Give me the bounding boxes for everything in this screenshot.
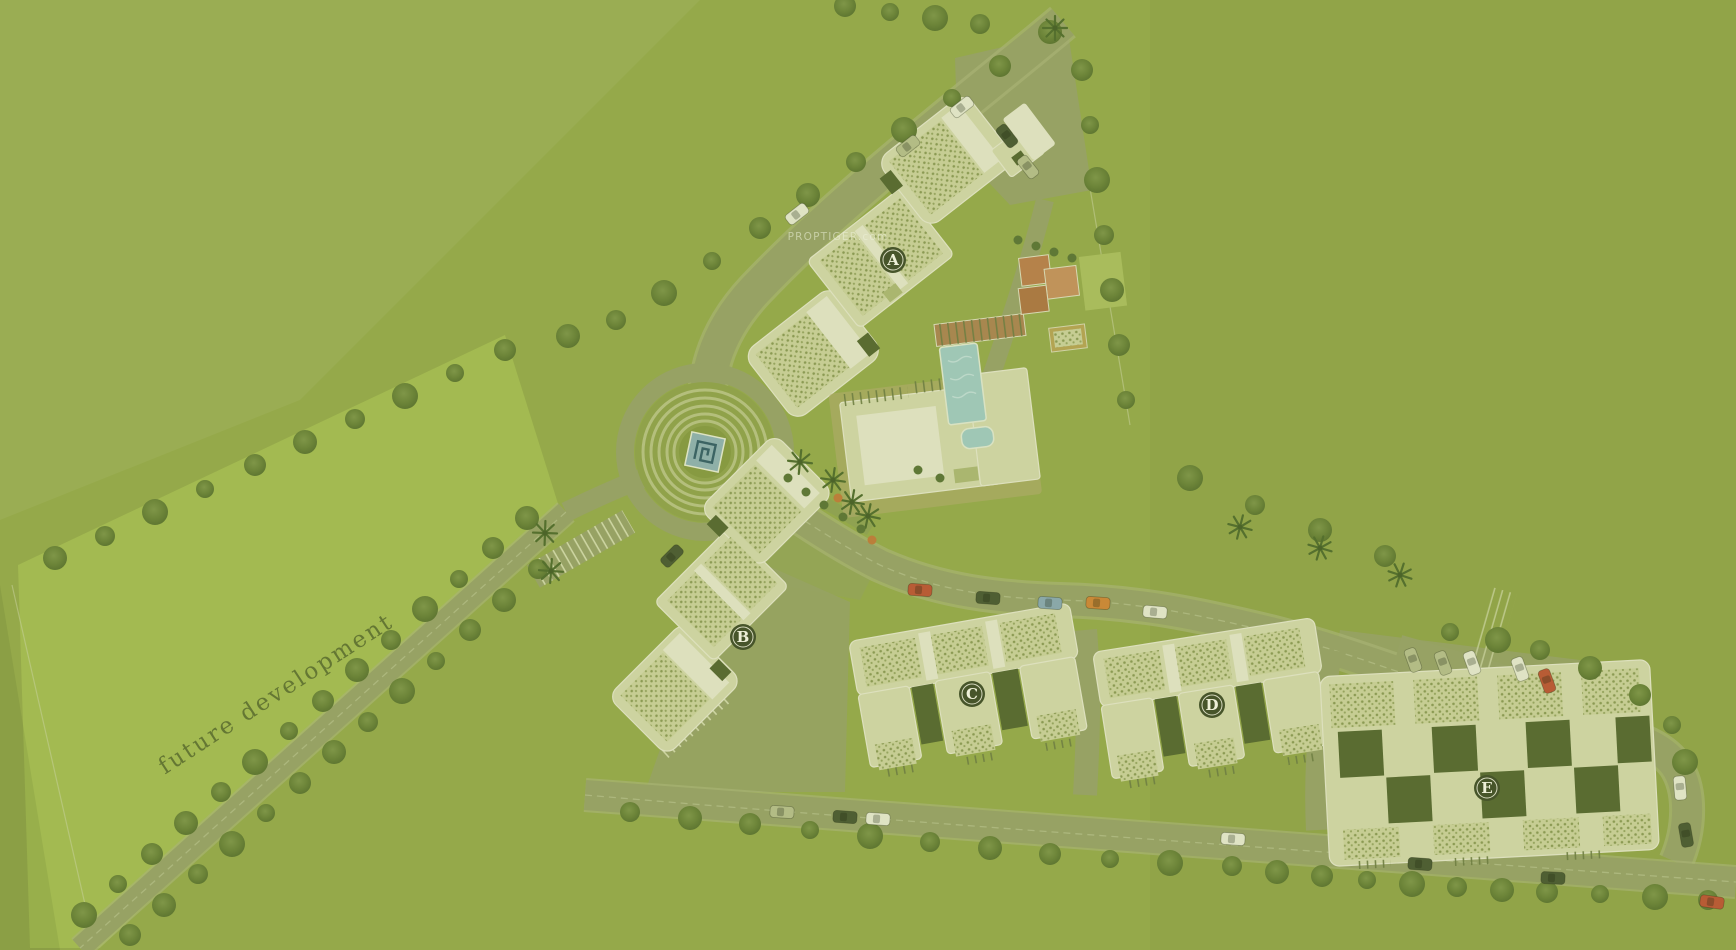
car <box>833 810 858 824</box>
tree-icon <box>450 570 468 588</box>
tree-icon <box>152 893 176 917</box>
watermark: PROPTIGER.com <box>788 231 889 243</box>
building-marker-d[interactable]: D <box>1199 692 1225 718</box>
tree-icon <box>1358 871 1376 889</box>
tree-icon <box>280 722 298 740</box>
tree-icon <box>1071 59 1093 81</box>
tree-icon <box>446 364 464 382</box>
building-e[interactable] <box>1320 660 1660 873</box>
tree-icon <box>978 836 1002 860</box>
tree-icon <box>43 546 67 570</box>
shrub-icon <box>784 474 793 483</box>
tree-icon <box>71 902 97 928</box>
shrub-icon <box>1032 242 1041 251</box>
tree-icon <box>881 3 899 21</box>
tree-icon <box>1591 885 1609 903</box>
tree-icon <box>1245 495 1265 515</box>
tree-icon <box>141 843 163 865</box>
shrub-icon <box>914 466 923 475</box>
tree-icon <box>119 924 141 946</box>
tree-icon <box>1039 843 1061 865</box>
tree-icon <box>922 5 948 31</box>
tree-icon <box>1265 860 1289 884</box>
tree-icon <box>1374 545 1396 567</box>
tree-icon <box>1672 749 1698 775</box>
tree-icon <box>211 782 231 802</box>
tree-icon <box>1101 850 1119 868</box>
tree-icon <box>345 409 365 429</box>
tree-icon <box>1157 850 1183 876</box>
tree-icon <box>459 619 481 641</box>
tree-icon <box>142 499 168 525</box>
tree-icon <box>515 506 539 530</box>
tree-icon <box>970 14 990 34</box>
tree-icon <box>1485 627 1511 653</box>
tree-icon <box>492 588 516 612</box>
road-c-d <box>1085 630 1088 795</box>
tree-icon <box>242 749 268 775</box>
tree-icon <box>1308 518 1332 542</box>
tree-icon <box>1441 623 1459 641</box>
kids-pool <box>960 426 994 450</box>
building-marker-letter: E <box>1481 779 1492 797</box>
car <box>1038 596 1063 610</box>
shrub-icon <box>1068 254 1077 263</box>
tree-icon <box>257 804 275 822</box>
palm-tree-icon <box>1043 16 1067 40</box>
building-marker-letter: D <box>1205 696 1218 714</box>
car <box>908 583 933 597</box>
building-marker-e[interactable]: E <box>1474 775 1500 801</box>
tree-icon <box>1177 465 1203 491</box>
tree-icon <box>1490 878 1514 902</box>
tree-icon <box>412 596 438 622</box>
car <box>1408 857 1433 871</box>
shrub-icon <box>1050 248 1059 257</box>
tree-icon <box>1530 640 1550 660</box>
flowering-shrub-icon <box>868 536 877 545</box>
tree-icon <box>801 821 819 839</box>
tree-icon <box>174 811 198 835</box>
shrub-icon <box>857 525 866 534</box>
building-marker-a[interactable]: A <box>880 247 906 273</box>
car <box>770 805 795 819</box>
shrub-icon <box>839 513 848 522</box>
site-plan: ABCDE future development PROPTIGER.com <box>0 0 1736 950</box>
tree-icon <box>556 324 580 348</box>
tree-icon <box>1399 871 1425 897</box>
tree-icon <box>1663 716 1681 734</box>
tree-icon <box>796 183 820 207</box>
tree-icon <box>109 875 127 893</box>
shrub-icon <box>802 488 811 497</box>
tree-icon <box>289 772 311 794</box>
palm-tree-icon <box>538 558 564 584</box>
tree-icon <box>1094 225 1114 245</box>
building-marker-letter: C <box>966 685 978 703</box>
garden-patch <box>1049 324 1088 352</box>
tree-icon <box>920 832 940 852</box>
car <box>1086 596 1111 610</box>
tree-icon <box>427 652 445 670</box>
tree-icon <box>857 823 883 849</box>
tree-icon <box>703 252 721 270</box>
tree-icon <box>739 813 761 835</box>
car <box>1143 605 1168 619</box>
tree-icon <box>1081 116 1099 134</box>
car <box>866 812 891 826</box>
shrub-icon <box>1014 236 1023 245</box>
tree-icon <box>196 480 214 498</box>
tree-icon <box>651 280 677 306</box>
tree-icon <box>1642 884 1668 910</box>
tree-icon <box>1117 391 1135 409</box>
tree-icon <box>1108 334 1130 356</box>
tree-icon <box>188 864 208 884</box>
fountain-emblem <box>685 432 725 472</box>
tree-icon <box>1222 856 1242 876</box>
tree-icon <box>389 678 415 704</box>
flowering-shrub-icon <box>834 494 843 503</box>
tree-icon <box>1629 684 1651 706</box>
tree-icon <box>989 55 1011 77</box>
tree-icon <box>678 806 702 830</box>
tree-icon <box>244 454 266 476</box>
shrub-icon <box>936 474 945 483</box>
car <box>1541 871 1566 884</box>
car <box>976 591 1001 605</box>
tree-icon <box>95 526 115 546</box>
tree-icon <box>846 152 866 172</box>
tree-icon <box>494 339 516 361</box>
tree-icon <box>606 310 626 330</box>
tree-icon <box>482 537 504 559</box>
tree-icon <box>312 690 334 712</box>
tree-icon <box>322 740 346 764</box>
building-marker-c[interactable]: C <box>959 681 985 707</box>
car <box>1221 832 1246 846</box>
tree-icon <box>293 430 317 454</box>
tree-icon <box>1447 877 1467 897</box>
building-marker-letter: A <box>886 251 899 269</box>
tree-icon <box>358 712 378 732</box>
site-plan-map: ABCDE future development PROPTIGER.com <box>0 0 1736 950</box>
tree-icon <box>1578 656 1602 680</box>
building-marker-b[interactable]: B <box>730 624 756 650</box>
tree-icon <box>1311 865 1333 887</box>
tree-icon <box>1084 167 1110 193</box>
shrub-icon <box>820 501 829 510</box>
tree-icon <box>749 217 771 239</box>
building-marker-letter: B <box>737 628 750 646</box>
tree-icon <box>392 383 418 409</box>
tree-icon <box>219 831 245 857</box>
tree-icon <box>620 802 640 822</box>
tree-icon <box>1100 278 1124 302</box>
car <box>1673 776 1687 801</box>
